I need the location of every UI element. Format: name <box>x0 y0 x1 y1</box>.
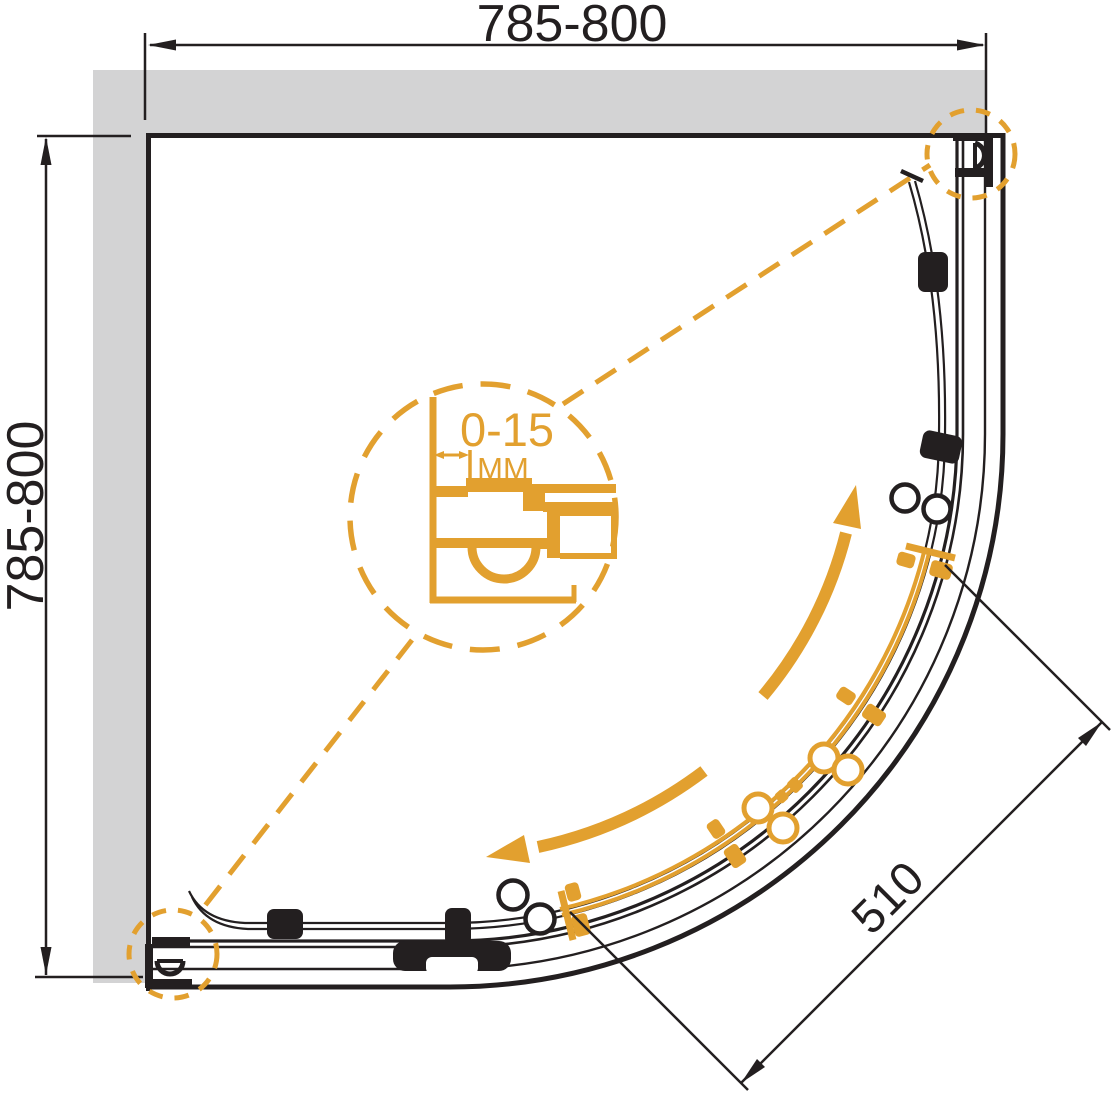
roller-top <box>918 252 948 292</box>
detail-slab <box>547 504 560 558</box>
arrowhead-left <box>148 40 176 51</box>
bl-profile-bottom-bar <box>147 979 192 988</box>
dim-label-left: 785-800 <box>0 421 55 612</box>
glass-line-outer <box>189 182 939 923</box>
arrow-up-shaft <box>763 533 846 696</box>
roller-bottom <box>267 909 303 939</box>
arrowhead-up <box>41 137 52 165</box>
detail-roller-cup <box>472 547 536 579</box>
door-knob-bottom-a <box>499 881 528 910</box>
arrow-up-head <box>833 485 861 529</box>
ext-line-lower <box>570 912 748 1090</box>
detail-unit-label: MM <box>477 451 529 486</box>
leader-to-bottom-left <box>200 640 412 912</box>
door-handles <box>744 744 862 842</box>
dim-line <box>741 722 1102 1083</box>
wall-edge-lines <box>146 133 1005 991</box>
handle-knob-1b <box>834 756 862 784</box>
tr-profile-bottom-bar <box>955 168 987 177</box>
roller-1-inner <box>895 551 916 569</box>
detail-range-label: 0-15 <box>460 403 554 456</box>
detail-view-content: 0-15 MM <box>430 397 616 603</box>
bottom-guide-notch <box>426 957 478 974</box>
dim-label-top: 785-800 <box>477 0 668 53</box>
fixed-glass-panels <box>189 171 945 929</box>
detail-rail-top <box>532 484 616 493</box>
roller-2-inner <box>835 685 858 707</box>
detail-connector <box>523 492 545 511</box>
handle-knob-2b <box>769 814 797 842</box>
technical-drawing-page: 785-800 785-800 510 <box>0 0 1115 1099</box>
handle-knob-2a <box>744 794 772 822</box>
leader-to-top-right <box>563 165 930 404</box>
arrowhead-down <box>41 947 52 975</box>
tr-profile-right-bar <box>984 138 993 187</box>
wall-top <box>93 70 987 133</box>
black-door-hardware <box>267 252 963 974</box>
shower-enclosure-plan-drawing: 785-800 785-800 510 <box>0 0 1115 1099</box>
door-knob-top-b <box>924 496 951 523</box>
arrow-down-head <box>486 835 530 863</box>
door-edge-bracket-bottom <box>445 908 471 945</box>
detail-flange-lower <box>433 486 468 497</box>
arrow-down-shaft <box>538 771 704 847</box>
outer-frame-arc <box>148 133 1003 987</box>
bl-profile-top-bar <box>152 937 190 946</box>
door-knob-top-a <box>892 485 919 512</box>
ext-line-upper <box>945 565 1110 730</box>
door-knob-bottom-b <box>526 905 555 934</box>
glass-clamp-b <box>774 788 790 804</box>
detail-body-bar <box>433 538 547 548</box>
wall-profile-top-right <box>953 134 993 187</box>
arrowhead-right <box>957 40 985 51</box>
wall-profile-bottom-left <box>145 937 192 988</box>
dim-label-door: 510 <box>841 851 934 944</box>
detail-channel <box>560 513 614 556</box>
frame-arcs <box>148 133 1003 987</box>
detail-leader-lines <box>200 165 930 912</box>
wall-left <box>93 70 148 983</box>
